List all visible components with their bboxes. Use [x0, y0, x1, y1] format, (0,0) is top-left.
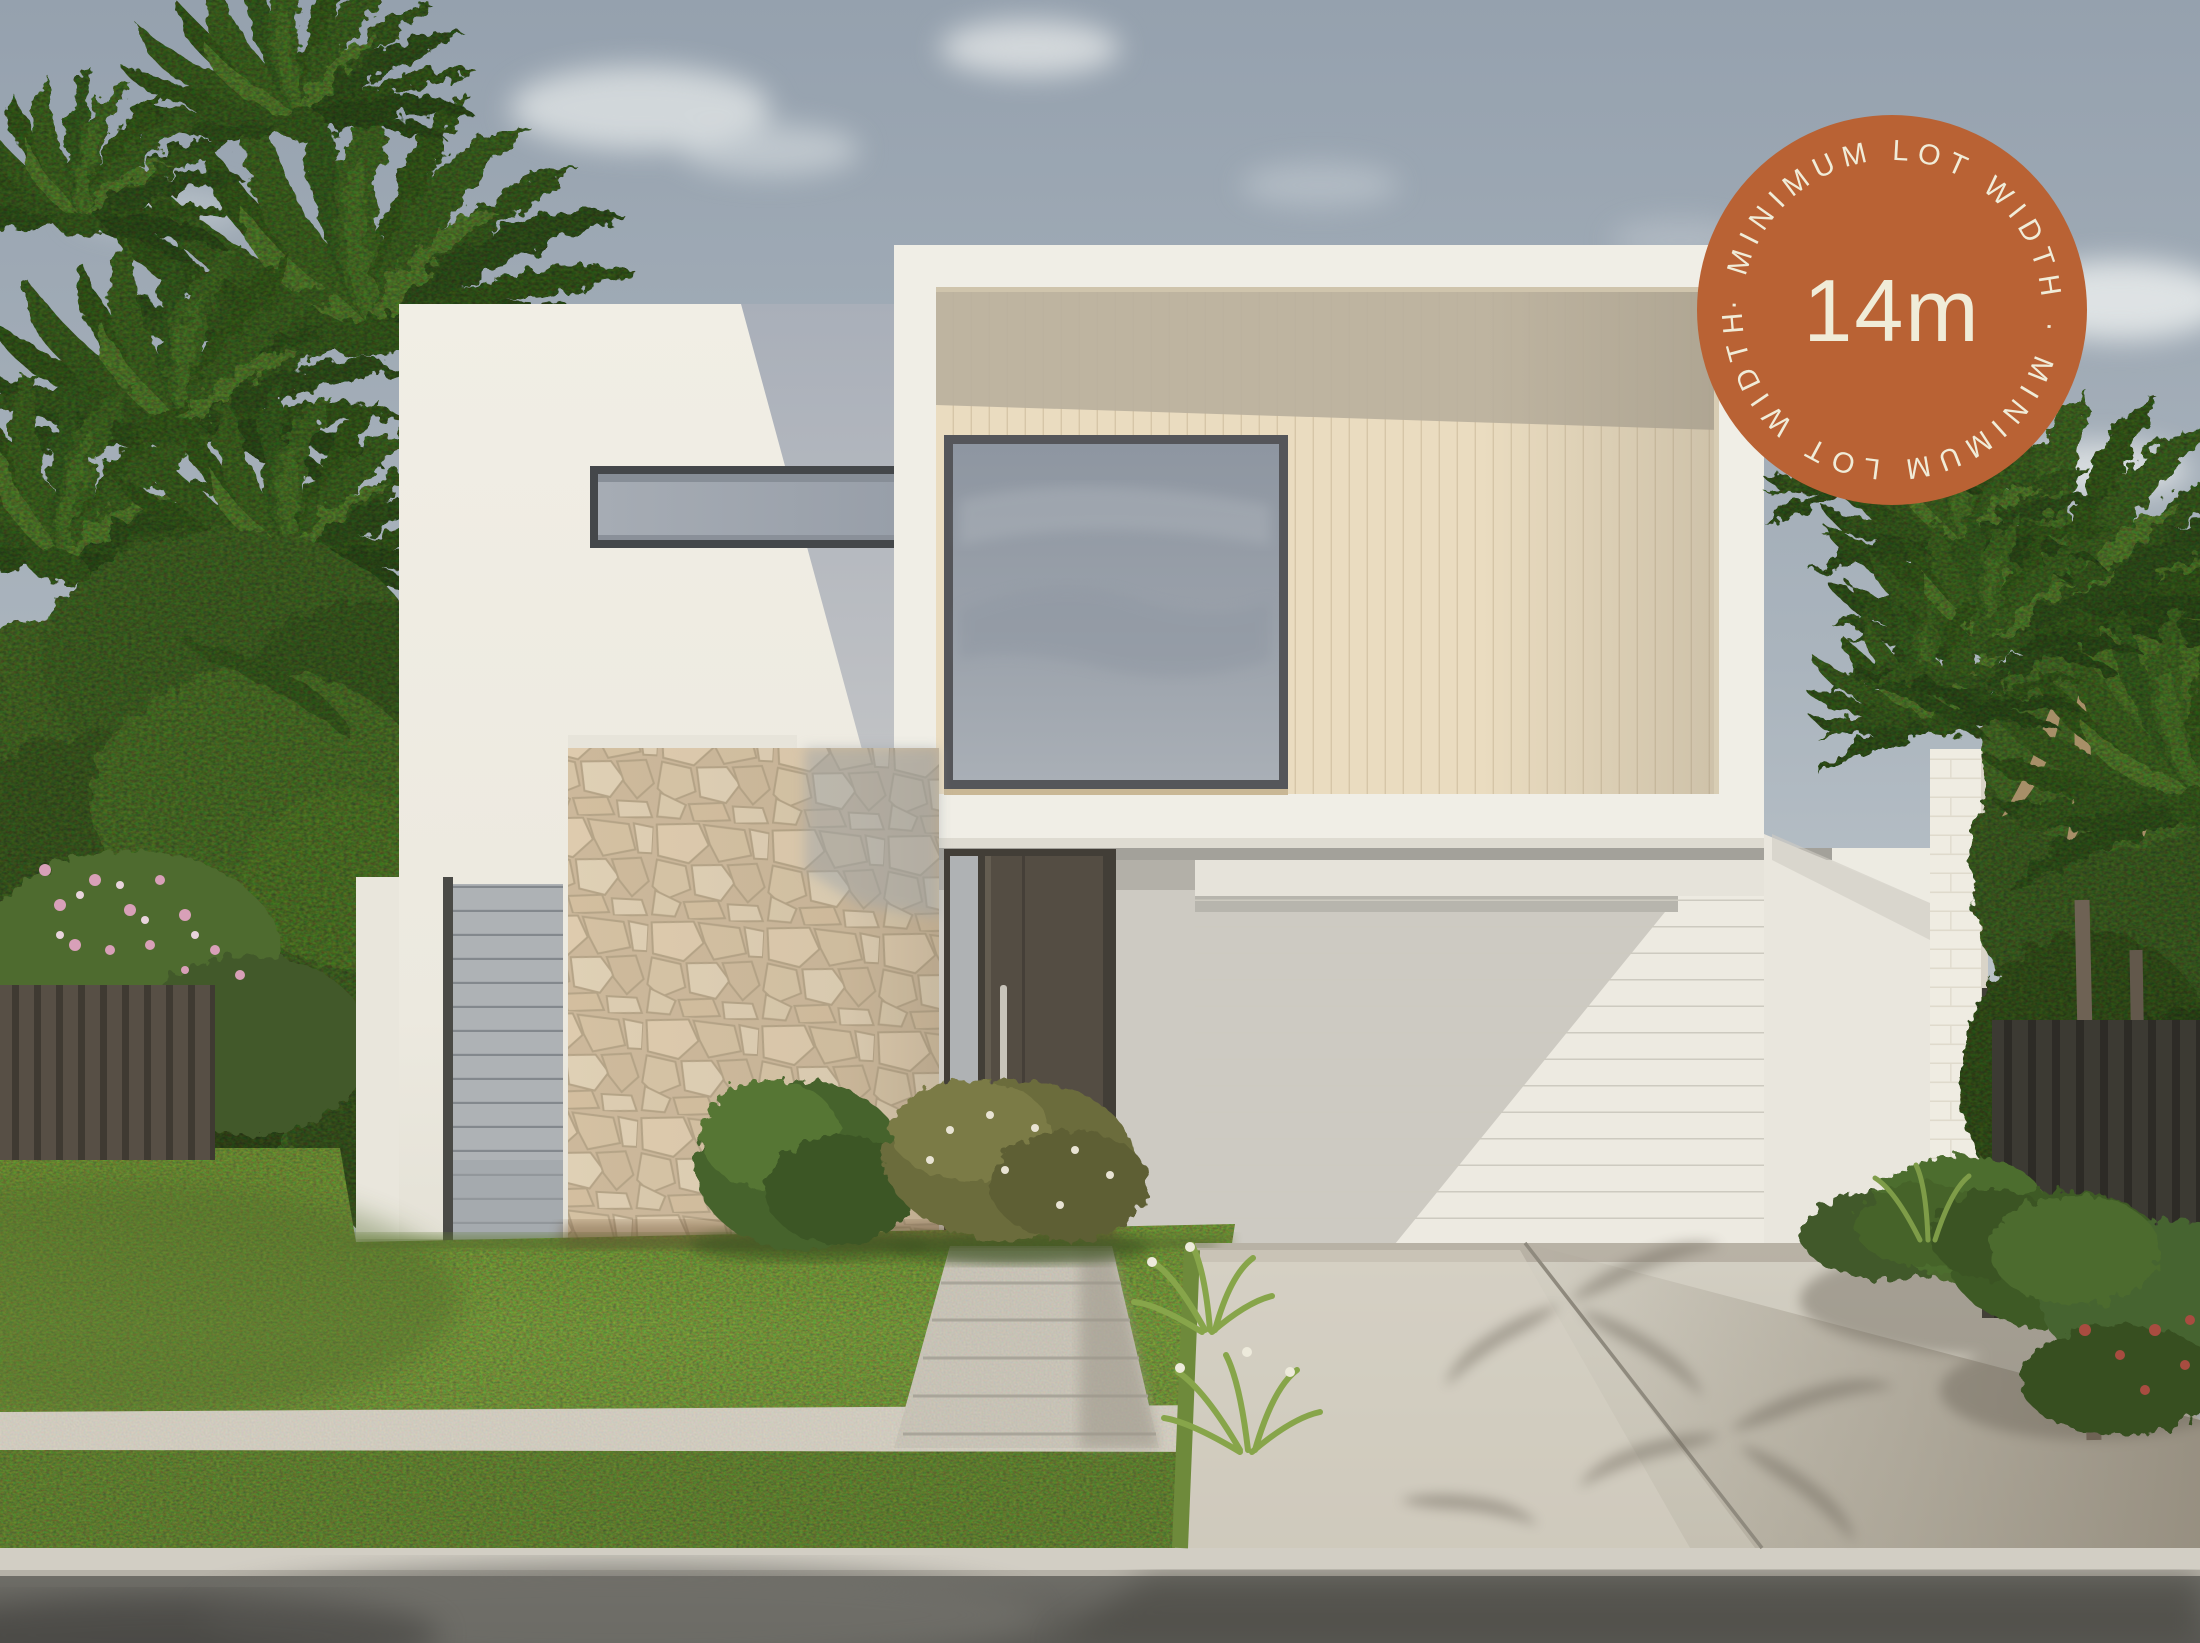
svg-text:14m: 14m [1803, 261, 1980, 360]
